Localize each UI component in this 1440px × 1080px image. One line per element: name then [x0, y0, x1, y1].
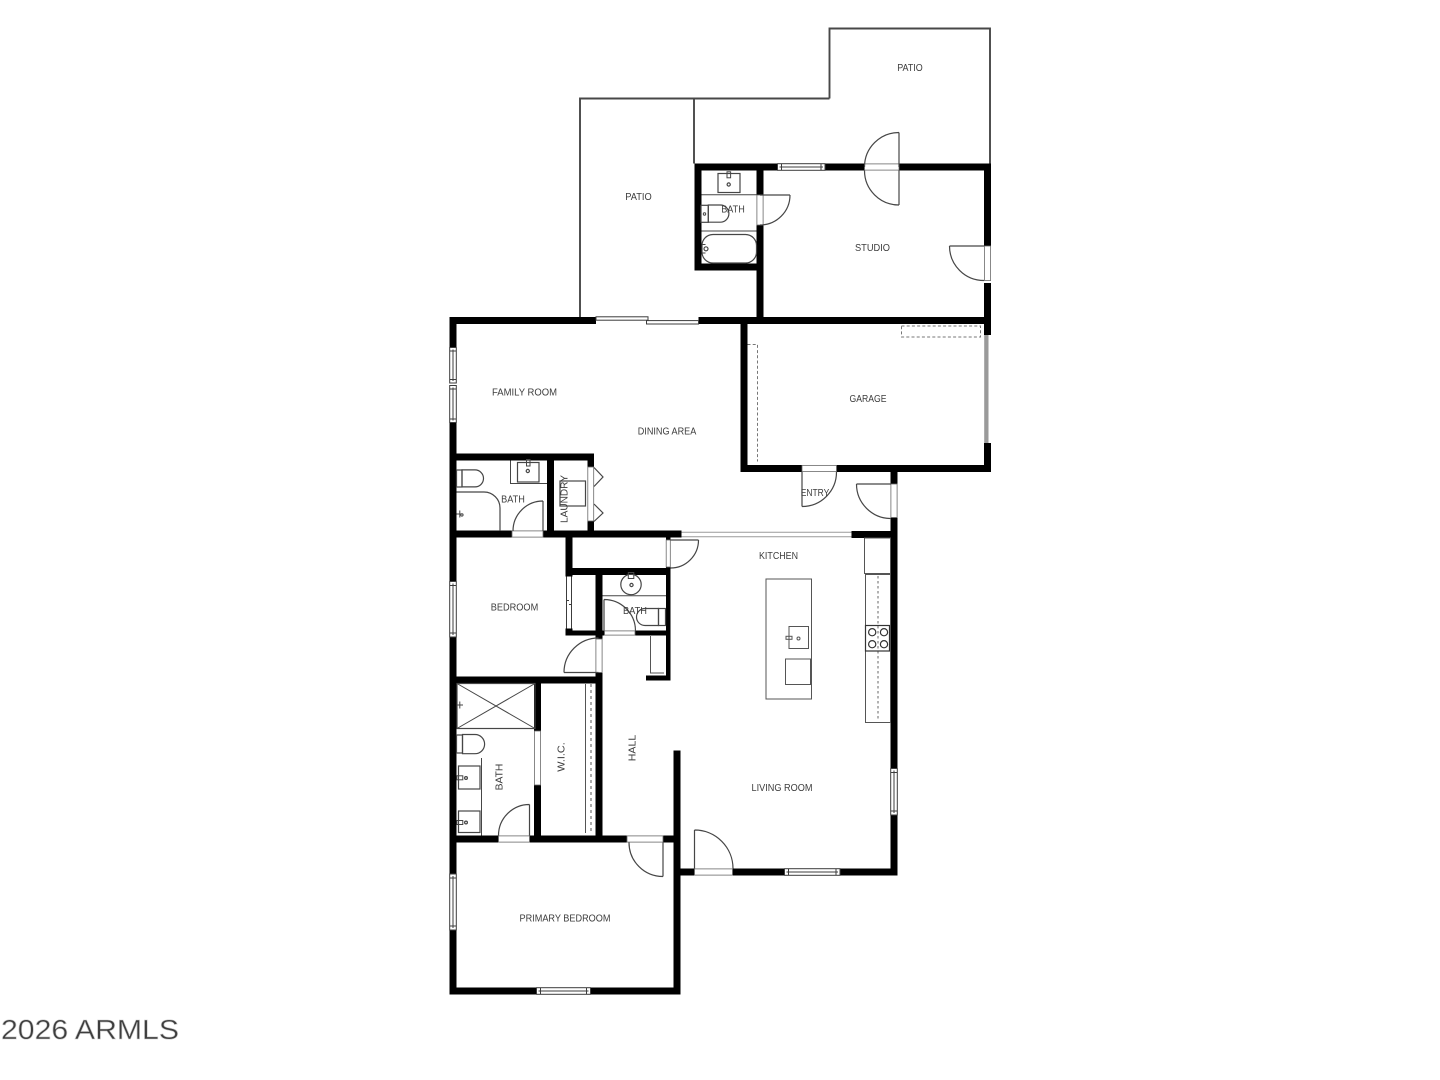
svg-text:BEDROOM: BEDROOM [491, 603, 539, 614]
svg-text:LIVING ROOM: LIVING ROOM [752, 783, 813, 794]
svg-text:HALL: HALL [628, 734, 639, 761]
svg-text:BATH: BATH [623, 606, 647, 617]
svg-text:2026 ARMLS: 2026 ARMLS [1, 1014, 179, 1045]
svg-text:BATH: BATH [495, 764, 506, 791]
svg-text:LAUNDRY: LAUNDRY [560, 475, 571, 523]
svg-text:PRIMARY BEDROOM: PRIMARY BEDROOM [520, 914, 611, 925]
svg-text:W.I.C.: W.I.C. [557, 742, 568, 772]
svg-text:BATH: BATH [721, 205, 745, 216]
svg-text:PATIO: PATIO [897, 63, 923, 74]
svg-text:FAMILY ROOM: FAMILY ROOM [492, 388, 557, 399]
svg-text:GARAGE: GARAGE [850, 394, 887, 405]
svg-text:DINING AREA: DINING AREA [638, 427, 697, 438]
svg-text:PATIO: PATIO [625, 192, 652, 203]
svg-text:BATH: BATH [501, 495, 525, 506]
svg-text:KITCHEN: KITCHEN [759, 551, 798, 562]
svg-text:STUDIO: STUDIO [855, 243, 890, 254]
svg-text:ENTRY: ENTRY [801, 488, 830, 499]
